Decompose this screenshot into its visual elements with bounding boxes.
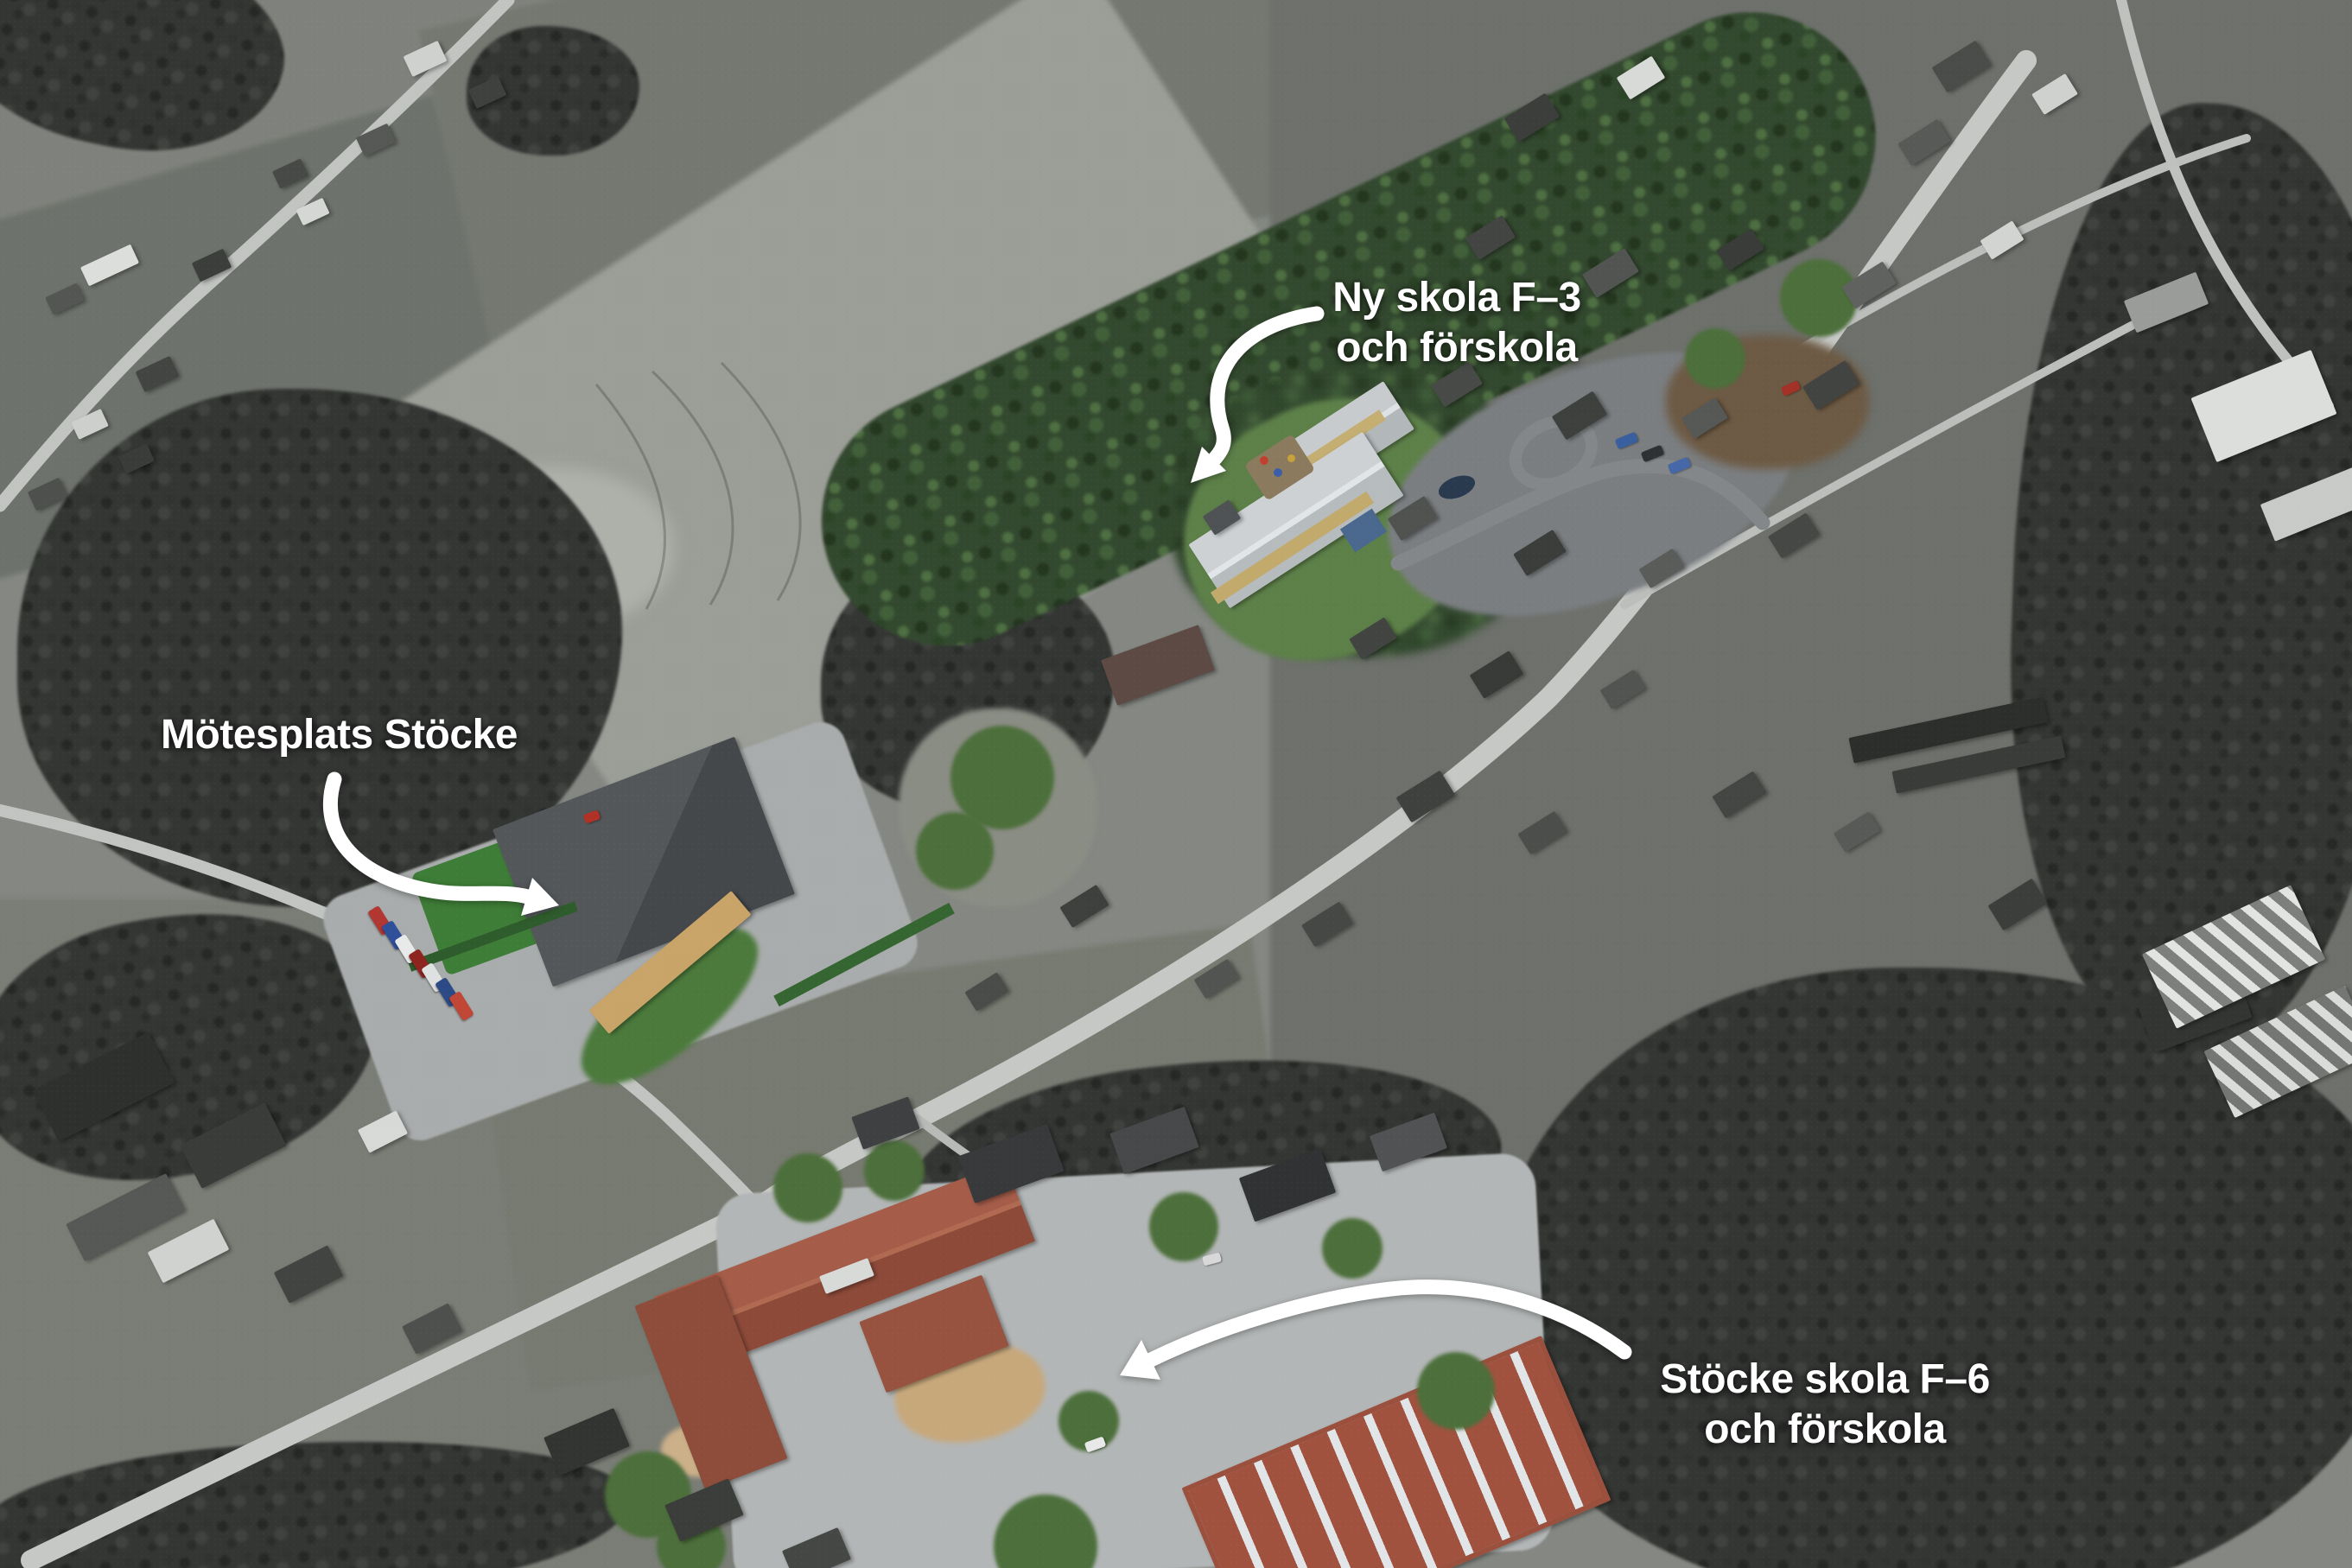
tree-cluster [1149,1192,1218,1261]
tree-cluster [1780,259,1858,337]
tree-cluster [773,1153,842,1222]
tree-cluster [916,812,994,890]
annotation-line: och förskola [1332,323,1580,373]
annotation-line: Stöcke skola F–6 [1660,1355,1990,1405]
curved-arrow-right-icon [255,760,583,924]
aerial-photo: Ny skola F–3 och förskola Mötesplats Stö… [0,0,2352,1568]
annotation-line: Ny skola F–3 [1332,273,1580,323]
tree-cluster [864,1140,925,1201]
tree-cluster [1685,328,1745,389]
annotation-line: Mötesplats Stöcke [161,710,518,760]
curved-arrow-down-icon [1177,298,1350,497]
annotation-stocke-skola: Stöcke skola F–6 och förskola [1660,1355,1990,1455]
annotation-line: och förskola [1660,1405,1990,1455]
annotation-ny-skola: Ny skola F–3 och förskola [1332,273,1580,373]
curved-arrow-left-icon [1106,1270,1642,1425]
annotation-motesplats: Mötesplats Stöcke [161,710,518,760]
